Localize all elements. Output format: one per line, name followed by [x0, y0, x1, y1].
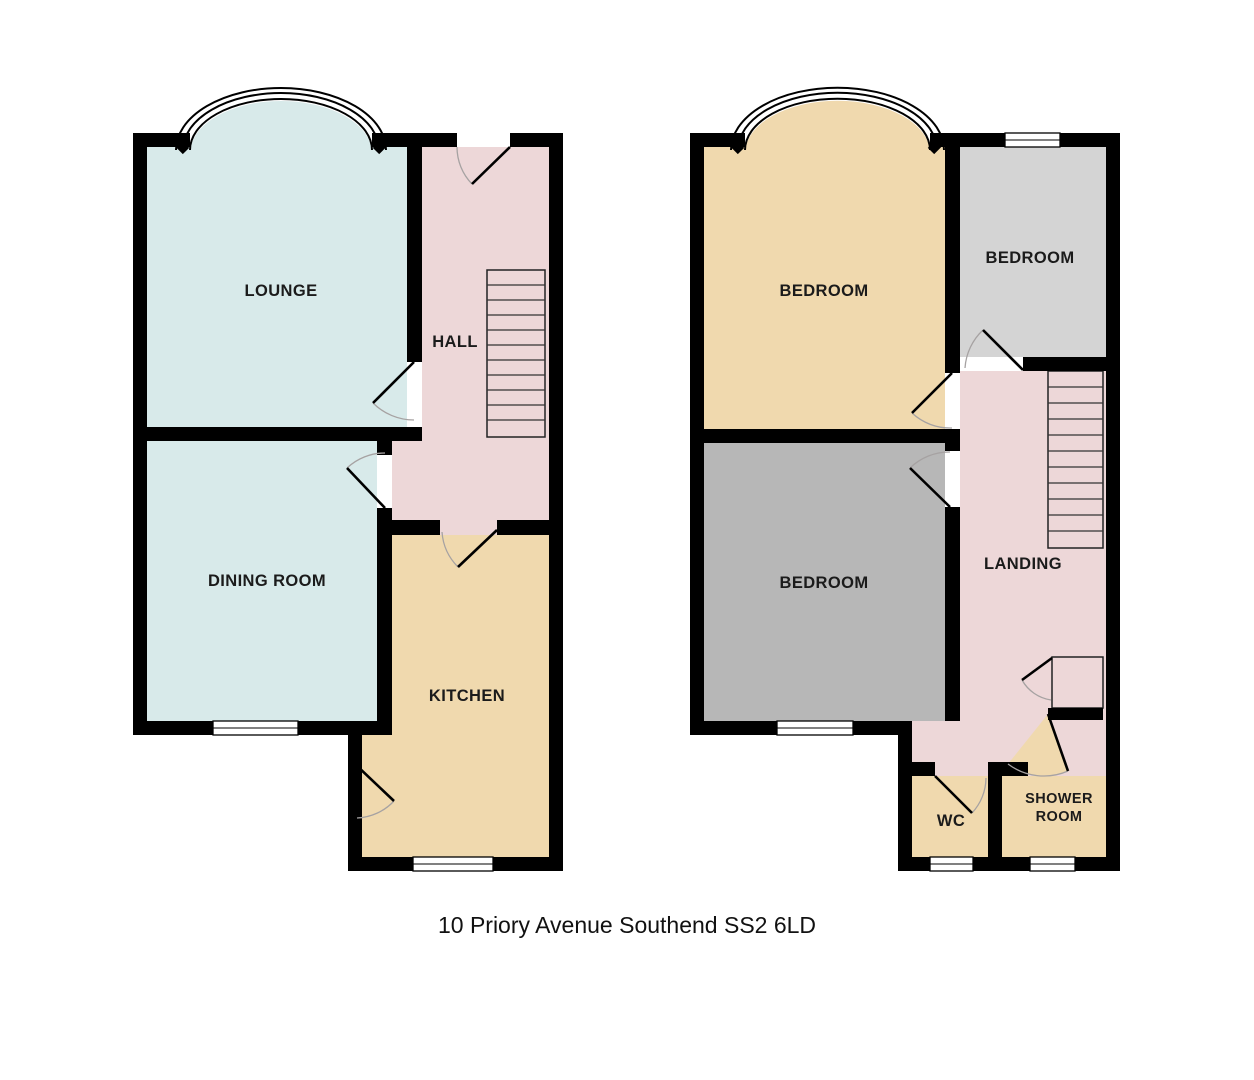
first-floor-plan: BEDROOM BEDROOM BEDROOM LANDING WC SHOWE…	[690, 88, 1120, 871]
label-dining-room: DINING ROOM	[208, 572, 326, 590]
address-caption: 10 Priory Avenue Southend SS2 6LD	[0, 912, 1254, 939]
room-landing	[960, 371, 1106, 721]
window-dining	[213, 721, 298, 735]
label-bedroom-front: BEDROOM	[780, 282, 869, 300]
label-shower-line1: SHOWER	[1025, 791, 1093, 807]
label-hall: HALL	[432, 333, 478, 351]
room-hall	[422, 147, 549, 427]
window-shower	[1030, 857, 1075, 871]
bay-window-floor-ground	[190, 101, 372, 153]
window-bedroom-top	[1005, 133, 1060, 147]
label-wc: WC	[937, 812, 965, 830]
room-hall-lower	[392, 427, 549, 535]
label-landing: LANDING	[984, 555, 1062, 573]
window-kitchen	[413, 857, 493, 871]
window-wc	[930, 857, 973, 871]
window-bedroom-back	[777, 721, 853, 735]
label-shower-line2: ROOM	[1036, 809, 1083, 825]
label-kitchen: KITCHEN	[429, 687, 505, 705]
floorplan-page: LOUNGE HALL DINING ROOM KITCHEN	[0, 0, 1254, 1080]
label-bedroom-back: BEDROOM	[780, 574, 869, 592]
ground-floor-plan: LOUNGE HALL DINING ROOM KITCHEN	[133, 88, 563, 871]
label-lounge: LOUNGE	[245, 282, 318, 300]
label-bedroom-top: BEDROOM	[986, 249, 1075, 267]
bay-window-floor-first	[745, 101, 930, 153]
